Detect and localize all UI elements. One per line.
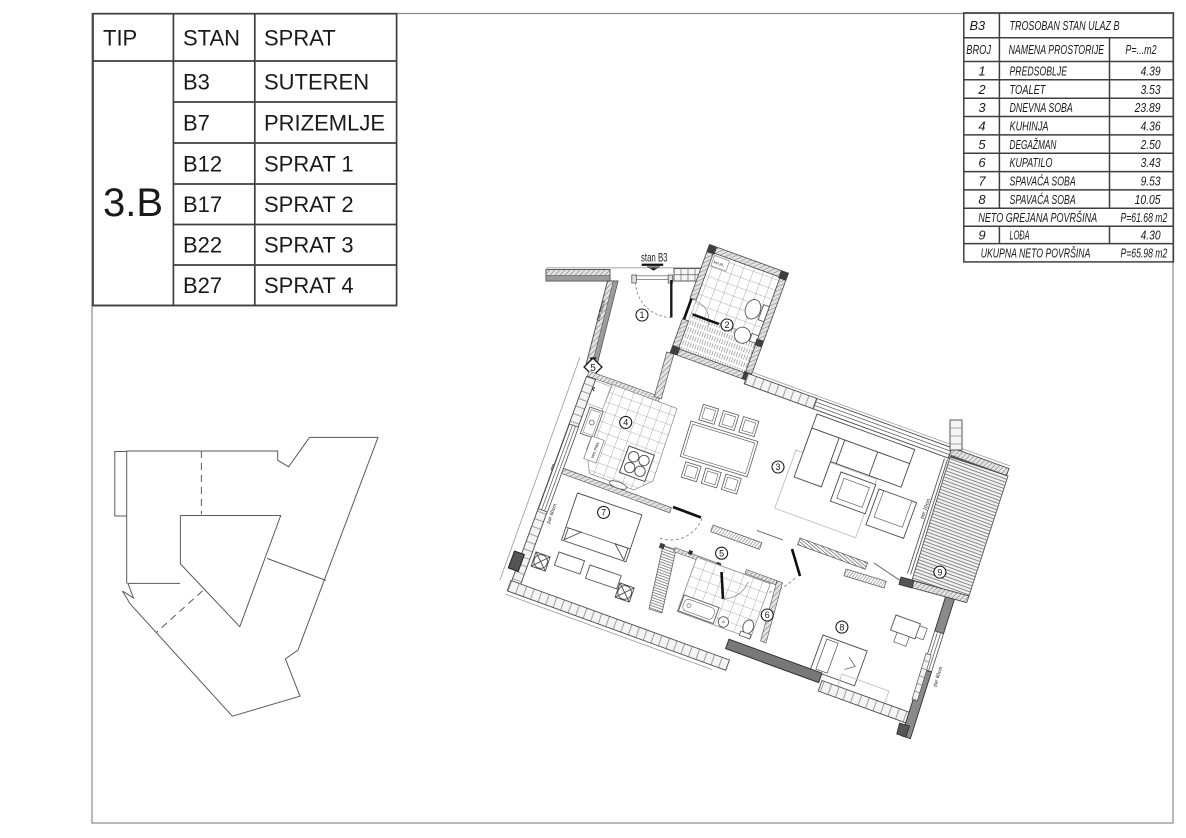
svg-text:KUPATILO: KUPATILO: [1010, 155, 1053, 170]
svg-text:6: 6: [765, 610, 770, 620]
svg-text:9: 9: [937, 567, 942, 577]
svg-text:4.39: 4.39: [1141, 64, 1161, 79]
svg-text:4.36: 4.36: [1141, 119, 1162, 134]
svg-text:9.53: 9.53: [1141, 174, 1162, 189]
svg-text:per 10cm: per 10cm: [919, 498, 932, 520]
svg-text:10.05: 10.05: [1135, 192, 1162, 207]
svg-text:SPAVAĆA SOBA: SPAVAĆA SOBA: [1010, 174, 1076, 189]
svg-text:PRIZEMLJE: PRIZEMLJE: [264, 111, 385, 136]
svg-text:stan B3: stan B3: [641, 251, 668, 265]
svg-text:B7: B7: [183, 111, 210, 136]
svg-text:NAMENA PROSTORIJE: NAMENA PROSTORIJE: [1009, 42, 1105, 57]
svg-text:6: 6: [978, 155, 986, 170]
svg-text:2.50: 2.50: [1140, 137, 1161, 152]
svg-text:1: 1: [978, 64, 985, 79]
svg-text:3.53: 3.53: [1141, 82, 1162, 97]
svg-text:SPRAT: SPRAT: [264, 26, 336, 51]
svg-text:23.89: 23.89: [1134, 100, 1161, 115]
svg-text:B3: B3: [970, 18, 986, 33]
svg-text:TIP: TIP: [103, 26, 137, 51]
svg-text:NETO GREJANA POVRŠINA: NETO GREJANA POVRŠINA: [978, 210, 1097, 225]
svg-text:P=65.98 m2: P=65.98 m2: [1121, 246, 1168, 261]
svg-text:9: 9: [978, 228, 985, 243]
svg-text:8: 8: [839, 622, 844, 632]
svg-text:SUTEREN: SUTEREN: [264, 70, 369, 95]
svg-text:1: 1: [639, 310, 644, 320]
svg-text:SPRAT 2: SPRAT 2: [264, 192, 354, 217]
svg-text:8: 8: [978, 192, 986, 207]
svg-text:UKUPNA NETO POVRŠINA: UKUPNA NETO POVRŠINA: [981, 246, 1091, 261]
svg-text:DEGAŽMAN: DEGAŽMAN: [1010, 137, 1057, 152]
svg-text:7: 7: [978, 174, 986, 189]
svg-text:B27: B27: [183, 273, 222, 298]
svg-text:KUHINJA: KUHINJA: [1010, 119, 1049, 134]
svg-text:3.B: 3.B: [103, 181, 163, 225]
svg-text:4: 4: [623, 418, 628, 428]
svg-text:3: 3: [775, 462, 780, 472]
svg-text:5: 5: [719, 548, 724, 558]
svg-text:SPAVAĆA SOBA: SPAVAĆA SOBA: [1010, 192, 1076, 207]
svg-text:7: 7: [601, 508, 606, 518]
svg-text:SPRAT 4: SPRAT 4: [264, 273, 354, 298]
svg-text:SPRAT 3: SPRAT 3: [264, 233, 354, 258]
svg-text:2: 2: [724, 320, 729, 330]
svg-text:P=61.68 m2: P=61.68 m2: [1121, 210, 1168, 225]
svg-text:LOĐA: LOĐA: [1010, 228, 1030, 243]
svg-text:2: 2: [977, 82, 986, 97]
svg-text:3: 3: [978, 100, 986, 115]
svg-text:DNEVNA SOBA: DNEVNA SOBA: [1010, 100, 1073, 115]
svg-text:B17: B17: [183, 192, 222, 217]
svg-text:SPRAT 1: SPRAT 1: [264, 152, 354, 177]
svg-text:STAN: STAN: [183, 26, 240, 51]
svg-text:TROSOBAN STAN ULAZ B: TROSOBAN STAN ULAZ B: [1010, 18, 1120, 33]
svg-text:4: 4: [978, 119, 985, 134]
svg-text:PREDSOBLJE: PREDSOBLJE: [1010, 64, 1068, 79]
svg-text:TOALET: TOALET: [1010, 82, 1047, 97]
svg-text:BROJ: BROJ: [966, 42, 991, 57]
svg-text:B22: B22: [183, 233, 222, 258]
svg-text:5: 5: [978, 137, 986, 152]
svg-text:B12: B12: [183, 152, 222, 177]
svg-text:P=...m2: P=...m2: [1125, 42, 1157, 57]
svg-text:3.43: 3.43: [1141, 155, 1162, 170]
svg-text:par 60cm: par 60cm: [932, 666, 944, 688]
svg-text:4.30: 4.30: [1141, 228, 1162, 243]
svg-text:B3: B3: [183, 70, 210, 95]
